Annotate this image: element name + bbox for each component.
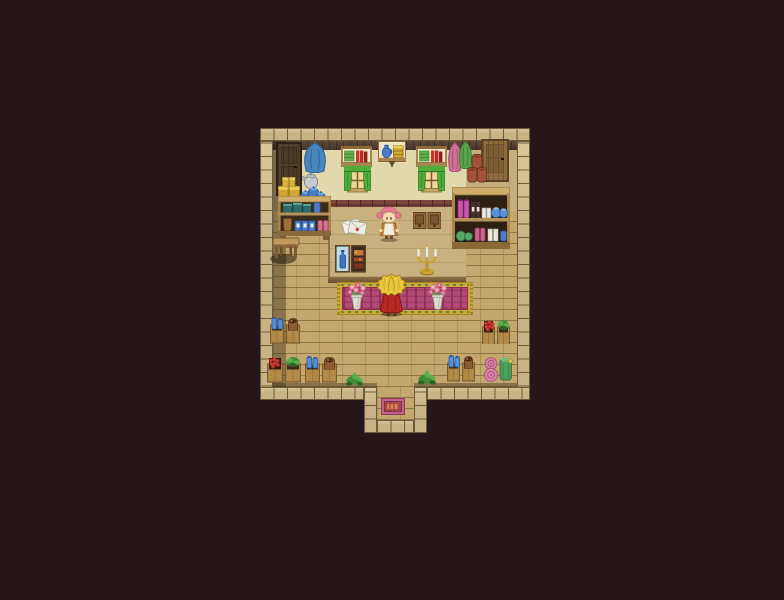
valance [418,166,445,172]
player-character-sprite [376,273,407,317]
bookshelf-right-sprite [416,146,447,167]
crate-bottles [270,317,284,344]
window-right [418,166,445,195]
crate-berries-sprite [267,356,283,384]
alcove-wall-right [414,387,427,433]
stool-shadow [270,254,296,264]
cabinet-right-icon [428,213,441,229]
display-case-sprite [335,245,366,273]
candelabra-sprite [415,244,439,276]
flower-vase-left[interactable] [346,282,367,314]
gift-box-top [283,178,296,188]
fabric-rolls[interactable] [483,354,514,382]
flower-vase-right-sprite [427,282,448,314]
door-handle-icon [294,166,297,168]
letters-sprite [342,214,368,238]
door-handle-icon [501,158,504,160]
bookshelf-left[interactable] [341,146,372,167]
crate-bottles-sack-right[interactable] [447,355,476,382]
pink-rolls-icon [484,358,497,382]
crate-sack-sprite [286,317,300,344]
berries-icon [269,358,281,369]
floor-plant-left [346,372,363,387]
green-books-icon [345,151,355,161]
crate-plant [497,319,510,344]
candle-flame-icon [426,244,428,247]
floor-plant-right-sprite [418,370,436,386]
display-blue-bottle [336,246,350,272]
crate-berries [267,356,283,384]
border-bottom-left [260,387,364,400]
potion-shelf-sprite [452,187,510,249]
candle-flame-icon [418,246,420,249]
crate-berries [482,319,495,344]
sack-stack[interactable] [467,151,487,183]
window-left-sprite [344,166,371,195]
display-case[interactable] [335,245,366,273]
sack-icon [465,357,473,369]
stool-sprite [270,234,302,264]
fabric-rolls-sprite [483,354,514,382]
crate-plant-sprite [497,319,510,344]
crate-berries-plant-right[interactable] [482,319,511,344]
cabinet-left-icon [413,213,426,229]
crate-bottles-sprite [447,355,460,382]
candelabra[interactable] [415,244,439,276]
teal-goods-row [283,203,320,213]
sack-icon [325,358,335,370]
shopkeeper-sprite [376,205,402,242]
leafy-plant-icon [287,357,300,367]
crate-bottles-sack-left[interactable] [270,317,301,344]
doormat-weave [387,404,399,409]
envelope-front [348,221,367,236]
valance [344,166,371,172]
crate-bottles-sprite [270,317,284,344]
door-panel-top [281,147,297,164]
sack-bottom-right [477,168,486,183]
candle-flame-icon [435,246,437,249]
display-goods [352,246,366,272]
crate-bottles [305,356,320,384]
crate-berries-sprite [482,319,495,344]
keeper-face [383,213,395,223]
bookshelf-right[interactable] [416,146,447,167]
ribbon-icon [508,359,512,363]
bookshelf-left-sprite [341,146,372,167]
window-left [344,166,371,195]
vase-icon [351,295,362,310]
letters[interactable] [342,214,368,238]
game-viewport [0,0,784,600]
border-right [517,141,530,400]
red-books-icon [356,151,367,163]
crate-plant-sprite [285,356,301,384]
shopkeeper[interactable] [376,205,402,242]
stool[interactable] [270,234,302,264]
door-panel-top [486,144,504,158]
crate-plant [285,356,301,384]
sack-stack-sprite [467,151,487,183]
crate-sack-sprite [322,356,337,384]
hanging-cloak-blue [302,141,328,173]
window-right-sprite [418,166,445,195]
flower-vase-right[interactable] [427,282,448,314]
sack-icon [289,319,298,331]
wall-shelf-jug-box[interactable] [378,141,406,168]
alcove-border-bottom [377,420,414,433]
counter-cabinets-sprite [413,212,441,229]
player-character[interactable] [376,273,407,317]
gold-box-icon [394,146,404,158]
crate-sack [462,355,475,382]
player-hair [378,274,406,296]
sack-bottom-left [468,168,477,183]
shelf-bracket [389,161,396,168]
crate-bottles [447,355,460,382]
crate-bottles-sprite [305,356,320,384]
crate-sack [322,356,337,384]
border-bottom-right [427,387,530,400]
green-books-icon [420,151,430,161]
crate-berries-plant-left[interactable] [267,356,301,384]
alcove-wall-left [364,387,377,433]
sack-top [472,155,482,169]
entrance-doormat[interactable] [381,398,405,415]
carpet-fringe-left [337,283,340,314]
carpet-fringe-right [470,283,473,314]
crate-bottles-sack-mid[interactable] [305,356,338,384]
door-panel-bottom [486,158,504,173]
wall-shelf-jug-box-sprite [378,141,406,168]
flower-vase-left-sprite [346,282,367,314]
keeper-apron [384,224,395,236]
floor-plant-left-sprite [346,372,363,387]
red-books-icon [431,151,442,163]
crate-sack [286,317,300,344]
crate-sack-sprite [462,355,475,382]
floor-plant-right [418,370,436,386]
potion-shelf[interactable] [452,187,510,249]
counter-cabinets[interactable] [413,212,441,229]
green-rolls-icon [500,358,513,380]
vase-icon [432,295,443,310]
candles-icon [417,244,436,257]
hanging-cloak-blue-sprite [302,141,328,173]
